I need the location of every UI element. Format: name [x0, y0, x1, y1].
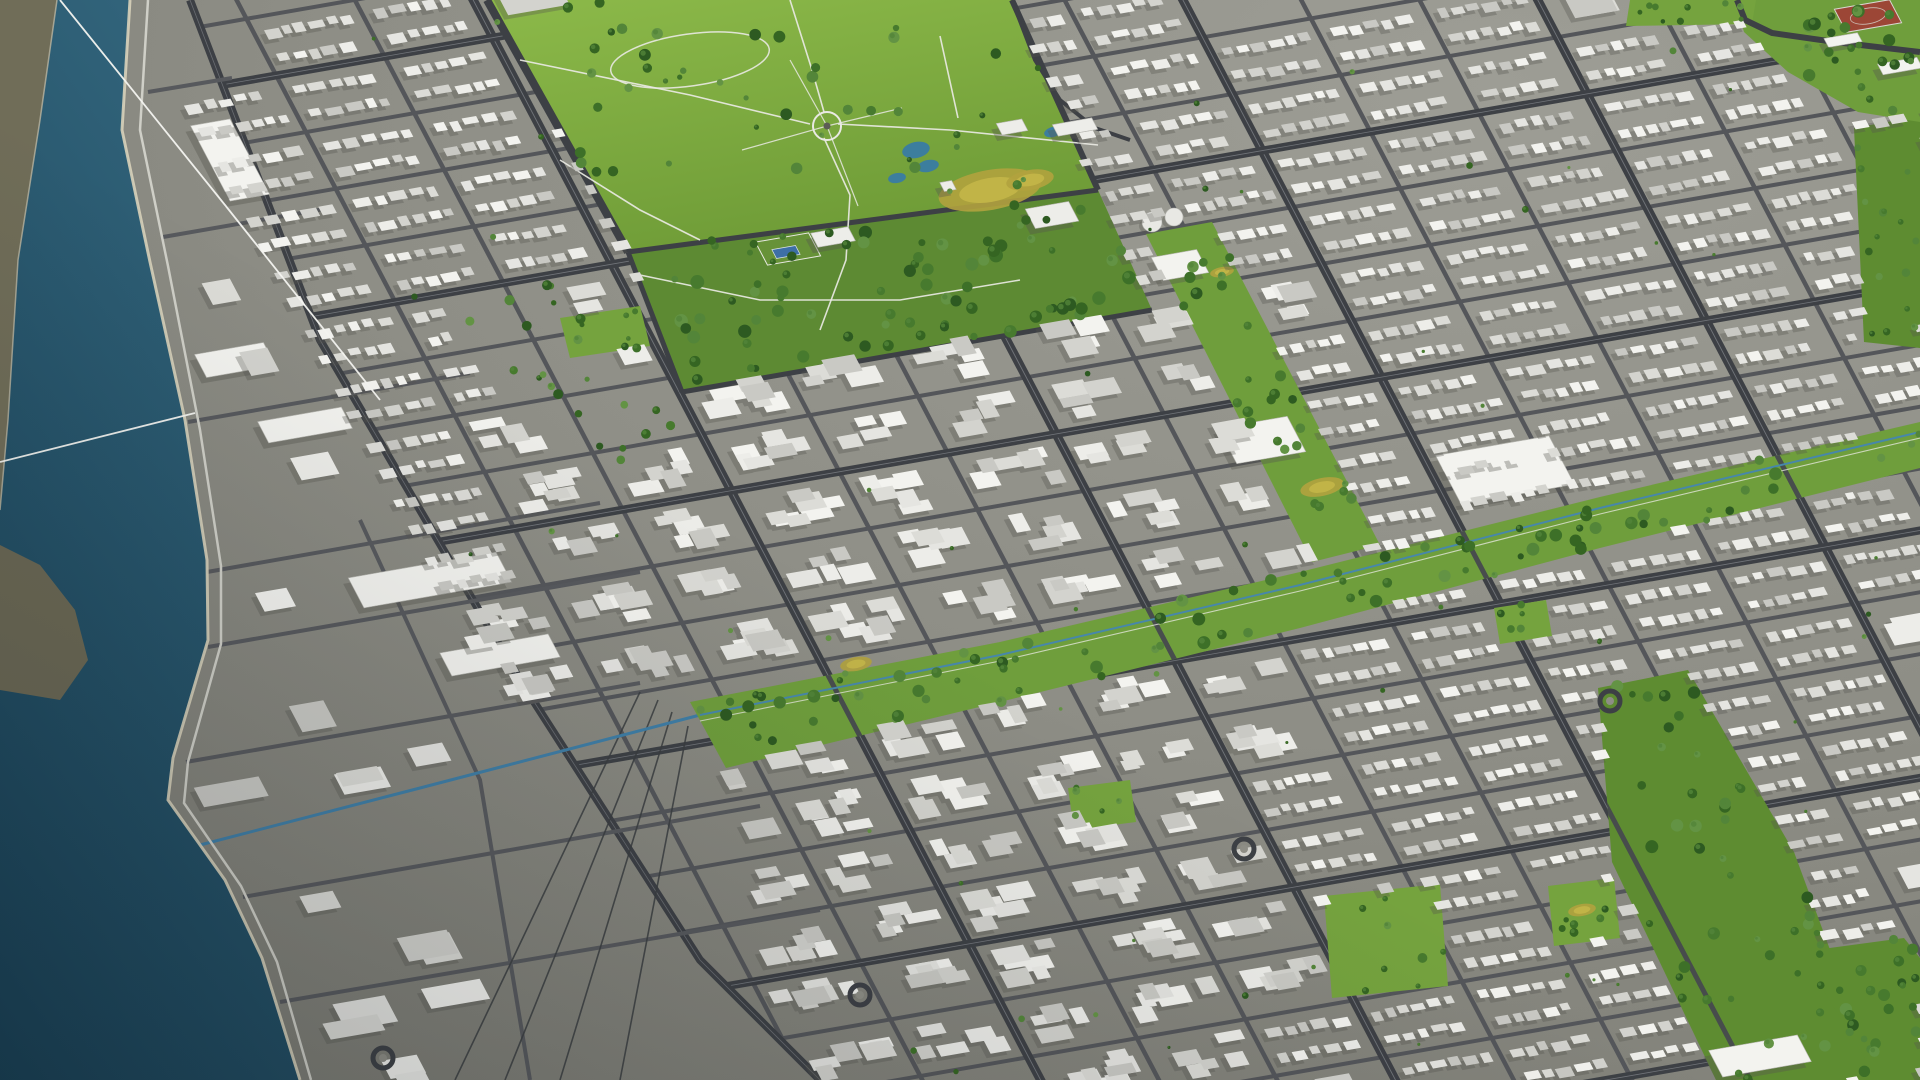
- lighting-vignette: [0, 0, 1920, 1080]
- city-aerial-scene: [0, 0, 1920, 1080]
- city-3d-aerial-render: [0, 0, 1920, 1080]
